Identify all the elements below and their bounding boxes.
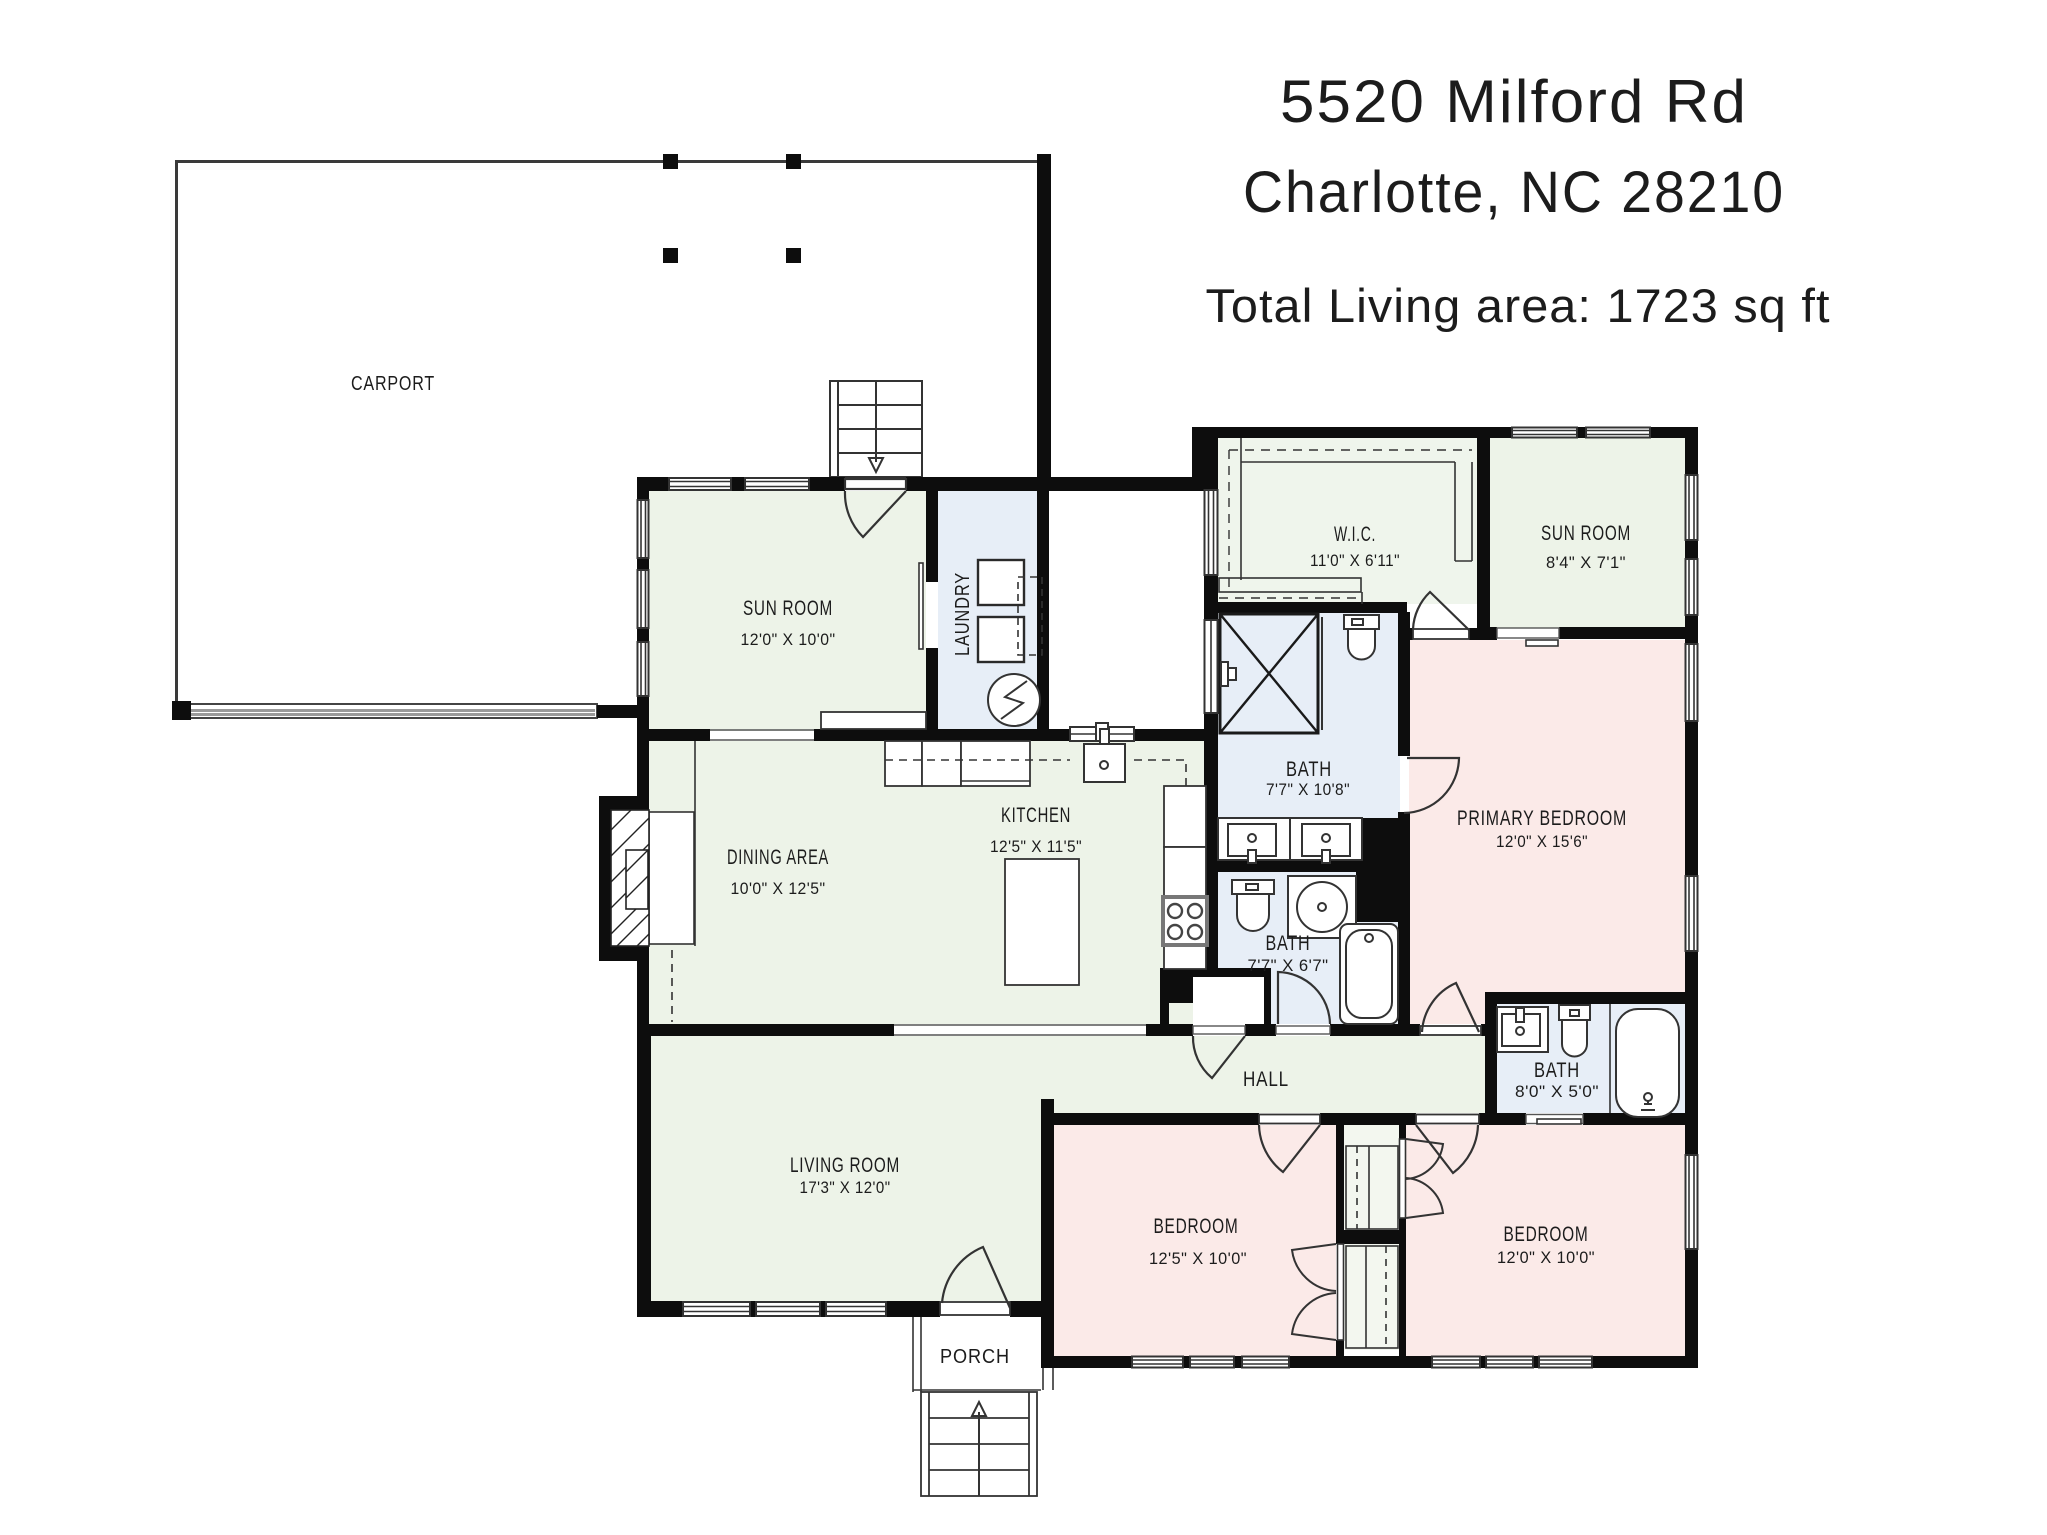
svg-text:BEDROOM: BEDROOM [1504, 1223, 1589, 1246]
svg-text:12'0" X 15'6": 12'0" X 15'6" [1496, 832, 1588, 851]
svg-text:5520 Milford Rd: 5520 Milford Rd [1280, 68, 1748, 135]
svg-text:PORCH: PORCH [940, 1346, 1010, 1368]
svg-text:7'7" X 6'7": 7'7" X 6'7" [1248, 956, 1329, 975]
svg-text:7'7" X 10'8": 7'7" X 10'8" [1266, 780, 1350, 799]
svg-text:BATH: BATH [1266, 932, 1311, 955]
svg-text:LAUNDRY: LAUNDRY [952, 572, 974, 656]
svg-text:8'4" X 7'1": 8'4" X 7'1" [1546, 553, 1626, 572]
svg-text:BEDROOM: BEDROOM [1154, 1215, 1239, 1238]
svg-text:DINING AREA: DINING AREA [727, 846, 829, 869]
svg-text:PRIMARY BEDROOM: PRIMARY BEDROOM [1457, 807, 1627, 830]
svg-text:11'0" X 6'11": 11'0" X 6'11" [1310, 551, 1400, 570]
svg-text:10'0" X 12'5": 10'0" X 12'5" [731, 879, 826, 898]
svg-text:12'0" X 10'0": 12'0" X 10'0" [1497, 1248, 1595, 1267]
svg-text:8'0" X 5'0": 8'0" X 5'0" [1515, 1082, 1599, 1101]
svg-text:LIVING ROOM: LIVING ROOM [790, 1154, 900, 1177]
svg-text:HALL: HALL [1243, 1068, 1289, 1091]
svg-text:W.I.C.: W.I.C. [1334, 523, 1376, 546]
svg-text:SUN ROOM: SUN ROOM [1541, 522, 1631, 545]
svg-text:SUN ROOM: SUN ROOM [743, 597, 833, 620]
svg-text:CARPORT: CARPORT [351, 373, 435, 395]
svg-text:12'5" X 10'0": 12'5" X 10'0" [1149, 1249, 1247, 1268]
svg-text:BATH: BATH [1534, 1059, 1580, 1082]
svg-text:KITCHEN: KITCHEN [1001, 804, 1071, 827]
svg-text:BATH: BATH [1286, 758, 1332, 781]
svg-text:12'5" X 11'5": 12'5" X 11'5" [990, 837, 1082, 856]
svg-text:12'0" X 10'0": 12'0" X 10'0" [741, 630, 836, 649]
svg-text:Total Living area: 1723 sq ft: Total Living area: 1723 sq ft [1206, 279, 1831, 332]
svg-text:17'3" X 12'0": 17'3" X 12'0" [800, 1178, 891, 1197]
svg-text:Charlotte, NC 28210: Charlotte, NC 28210 [1243, 160, 1785, 225]
